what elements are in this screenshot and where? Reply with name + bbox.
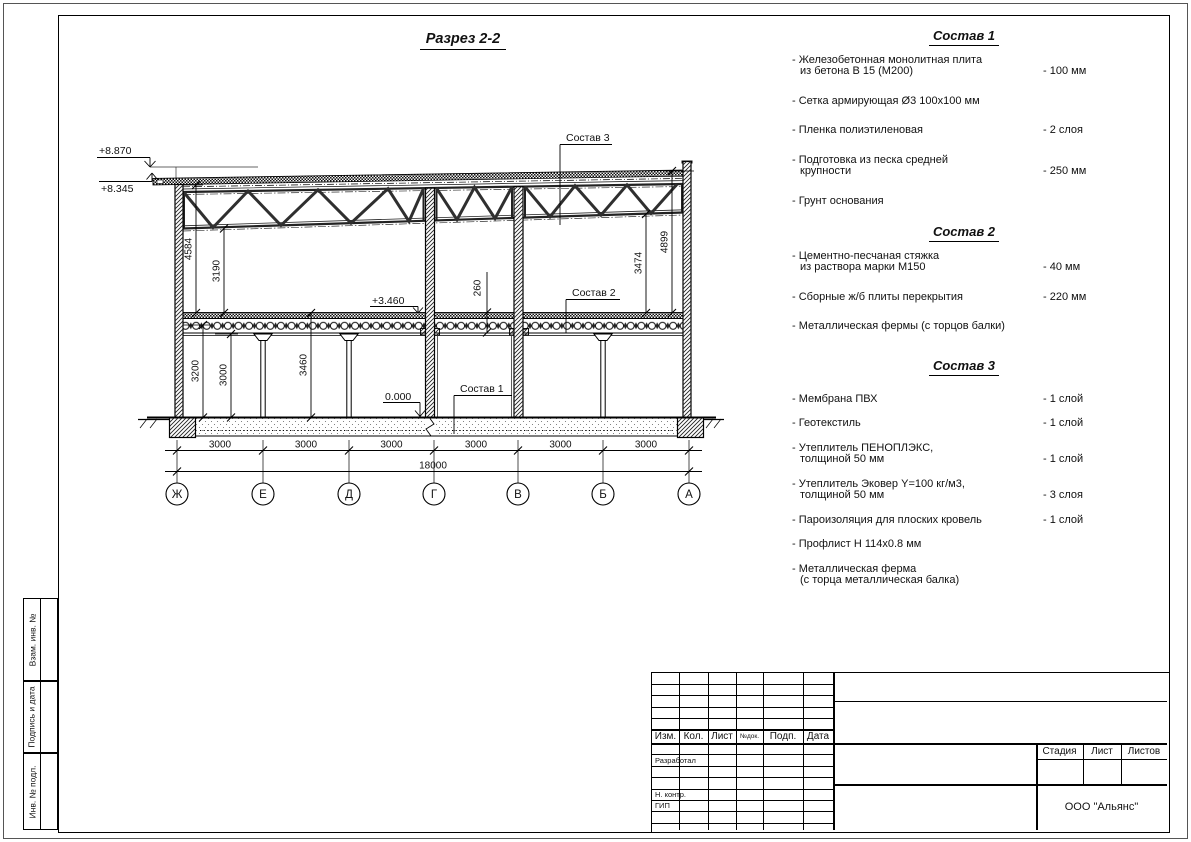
wall-left xyxy=(175,185,183,418)
list-item: - Утеплитель ПЕНОПЛЭКС, толщиной 50 мм- … xyxy=(792,443,1136,466)
level-value: +8.345 xyxy=(101,183,134,195)
truss-diagonals-span2 xyxy=(437,187,513,220)
svg-text:3460: 3460 xyxy=(299,353,310,376)
svg-text:4899: 4899 xyxy=(660,230,671,253)
ground-floor xyxy=(138,418,724,438)
axis-label: Б xyxy=(599,489,607,501)
tb-header-izm: Изм. xyxy=(652,729,679,743)
list-item: - Сетка армирующая Ø3 100х100 мм xyxy=(792,96,1136,108)
list-item: - Пленка полиэтиленовая- 2 слоя xyxy=(792,125,1136,137)
attr-label: Подпись и дата xyxy=(27,686,37,747)
composition-3: Состав 3 - Мембрана ПВХ- 1 слой - Геотек… xyxy=(792,360,1136,600)
tb-row-ncontrol: Н. контр. xyxy=(652,789,711,800)
footing-left xyxy=(170,418,196,438)
svg-text:3000: 3000 xyxy=(549,440,572,451)
axis-label: Д xyxy=(345,489,353,501)
composition-2: Состав 2 - Цементно-песчаная стяжка из р… xyxy=(792,226,1136,351)
svg-text:3000: 3000 xyxy=(219,363,230,386)
level-value: +3.460 xyxy=(372,295,405,307)
composition-1: Состав 1 - Железобетонная монолитная пли… xyxy=(792,30,1136,225)
attr-box: Подпись и дата xyxy=(23,681,58,753)
level-mark-floor1: 0.000 xyxy=(383,391,425,417)
axis-label: Е xyxy=(259,489,267,501)
axis-label: Ж xyxy=(172,489,183,501)
attr-label: Взам. инв. № xyxy=(27,613,37,666)
list-item: - Железобетонная монолитная плита из бет… xyxy=(792,55,1136,78)
list-item: - Грунт основания xyxy=(792,196,1136,208)
list-item: - Профлист Н 114х0.8 мм xyxy=(792,539,1136,551)
axis-label: А xyxy=(685,489,693,501)
level-value: 0.000 xyxy=(385,391,411,403)
axis-label: Г xyxy=(431,489,438,501)
list-item: - Геотекстиль- 1 слой xyxy=(792,418,1136,430)
list-item: - Утеплитель Эковер Y=100 кг/м3, толщино… xyxy=(792,479,1136,502)
tb-header-list: Лист xyxy=(708,729,736,743)
horizontal-dimensions: 3000 3000 3000 3000 3000 3000 18000 xyxy=(165,440,702,484)
svg-text:Состав 3: Состав 3 xyxy=(566,132,610,144)
truss-diagonals-span3 xyxy=(525,184,677,217)
level-mark-floor2: +3.460 xyxy=(370,295,423,313)
svg-text:3474: 3474 xyxy=(634,251,645,274)
tb-header-kol: Кол. xyxy=(679,729,708,743)
svg-text:Состав 1: Состав 1 xyxy=(460,383,504,395)
list-item: - Пароизоляция для плоских кровель- 1 сл… xyxy=(792,515,1136,527)
svg-text:4584: 4584 xyxy=(184,237,195,260)
grid-axes: Ж Е Д Г В Б А xyxy=(166,483,700,505)
svg-text:3200: 3200 xyxy=(191,359,202,382)
list-item: - Металлическая фермы (с торцов балки) xyxy=(792,321,1136,333)
level-mark-roof-high: +8.870 xyxy=(97,145,156,167)
tb-row-gip: ГИП xyxy=(652,800,711,811)
roof-drip-edge xyxy=(157,180,163,184)
footing-right xyxy=(678,418,704,438)
attr-box: Взам. инв. № xyxy=(23,598,58,681)
level-value: +8.870 xyxy=(99,145,132,157)
tb-header-data: Дата xyxy=(803,729,833,743)
title-block: Изм. Кол. Лист №док. Подп. Дата Разработ… xyxy=(651,672,1170,833)
svg-text:3000: 3000 xyxy=(295,440,318,451)
wall-right xyxy=(682,161,693,418)
composition-3-title: Состав 3 xyxy=(792,360,1136,372)
svg-text:3000: 3000 xyxy=(465,440,488,451)
attr-label: Инв. № подл. xyxy=(27,765,37,818)
svg-text:260: 260 xyxy=(473,279,484,296)
list-item: - Подготовка из песка средней крупности-… xyxy=(792,155,1136,178)
column-cut-v xyxy=(510,187,529,418)
tb-sheets-header: Листов xyxy=(1121,743,1167,759)
list-item: - Сборные ж/б плиты перекрытия- 220 мм xyxy=(792,292,1136,304)
column-cut-g xyxy=(421,188,440,417)
list-item: - Металлическая ферма (с торца металличе… xyxy=(792,564,1136,587)
axis-label: В xyxy=(514,489,522,501)
section-title-text: Разрез 2-2 xyxy=(420,31,506,50)
tb-row-developer: Разработал xyxy=(652,754,711,765)
tb-stage-header: Стадия xyxy=(1036,743,1083,759)
svg-text:3190: 3190 xyxy=(212,259,223,282)
tb-header-ndok: №док. xyxy=(736,729,763,743)
tb-company: ООО "Альянс" xyxy=(1036,784,1167,830)
svg-text:3000: 3000 xyxy=(209,440,232,451)
composition-1-title: Состав 1 xyxy=(792,30,1136,42)
section-title: Разрез 2-2 xyxy=(402,31,524,47)
tb-header-podp: Подп. xyxy=(763,729,803,743)
drawing-sheet: Разрез 2-2 xyxy=(0,0,1191,842)
svg-text:3000: 3000 xyxy=(635,440,658,451)
tb-sheet-header: Лист xyxy=(1083,743,1121,759)
section-drawing: +8.870 +8.345 +3.460 0.000 xyxy=(85,125,760,515)
composition-2-title: Состав 2 xyxy=(792,226,1136,238)
svg-text:Состав 2: Состав 2 xyxy=(572,287,616,299)
svg-text:3000: 3000 xyxy=(380,440,403,451)
list-item: - Цементно-песчаная стяжка из раствора м… xyxy=(792,251,1136,274)
list-item: - Мембрана ПВХ- 1 слой xyxy=(792,394,1136,406)
margin-attribute-column: Взам. инв. № Подпись и дата Инв. № подл. xyxy=(23,598,58,830)
svg-text:18000: 18000 xyxy=(419,461,447,472)
level-mark-roof-low: +8.345 xyxy=(99,173,158,195)
attr-box: Инв. № подл. xyxy=(23,753,58,830)
